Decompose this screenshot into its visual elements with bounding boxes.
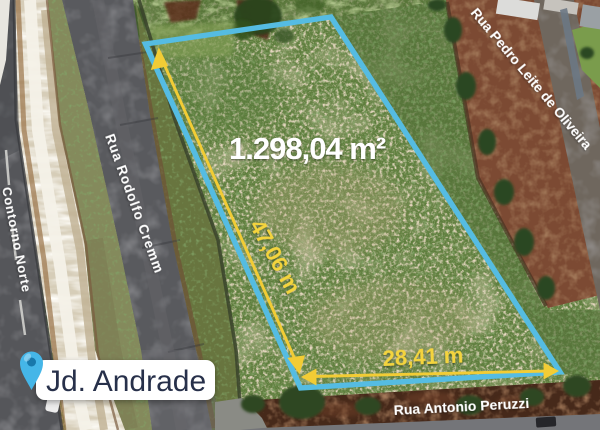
svg-text:Jd. Andrade: Jd. Andrade [46, 365, 206, 398]
svg-text:28,41 m: 28,41 m [382, 342, 464, 370]
svg-text:1.298,04 m²: 1.298,04 m² [229, 131, 386, 166]
